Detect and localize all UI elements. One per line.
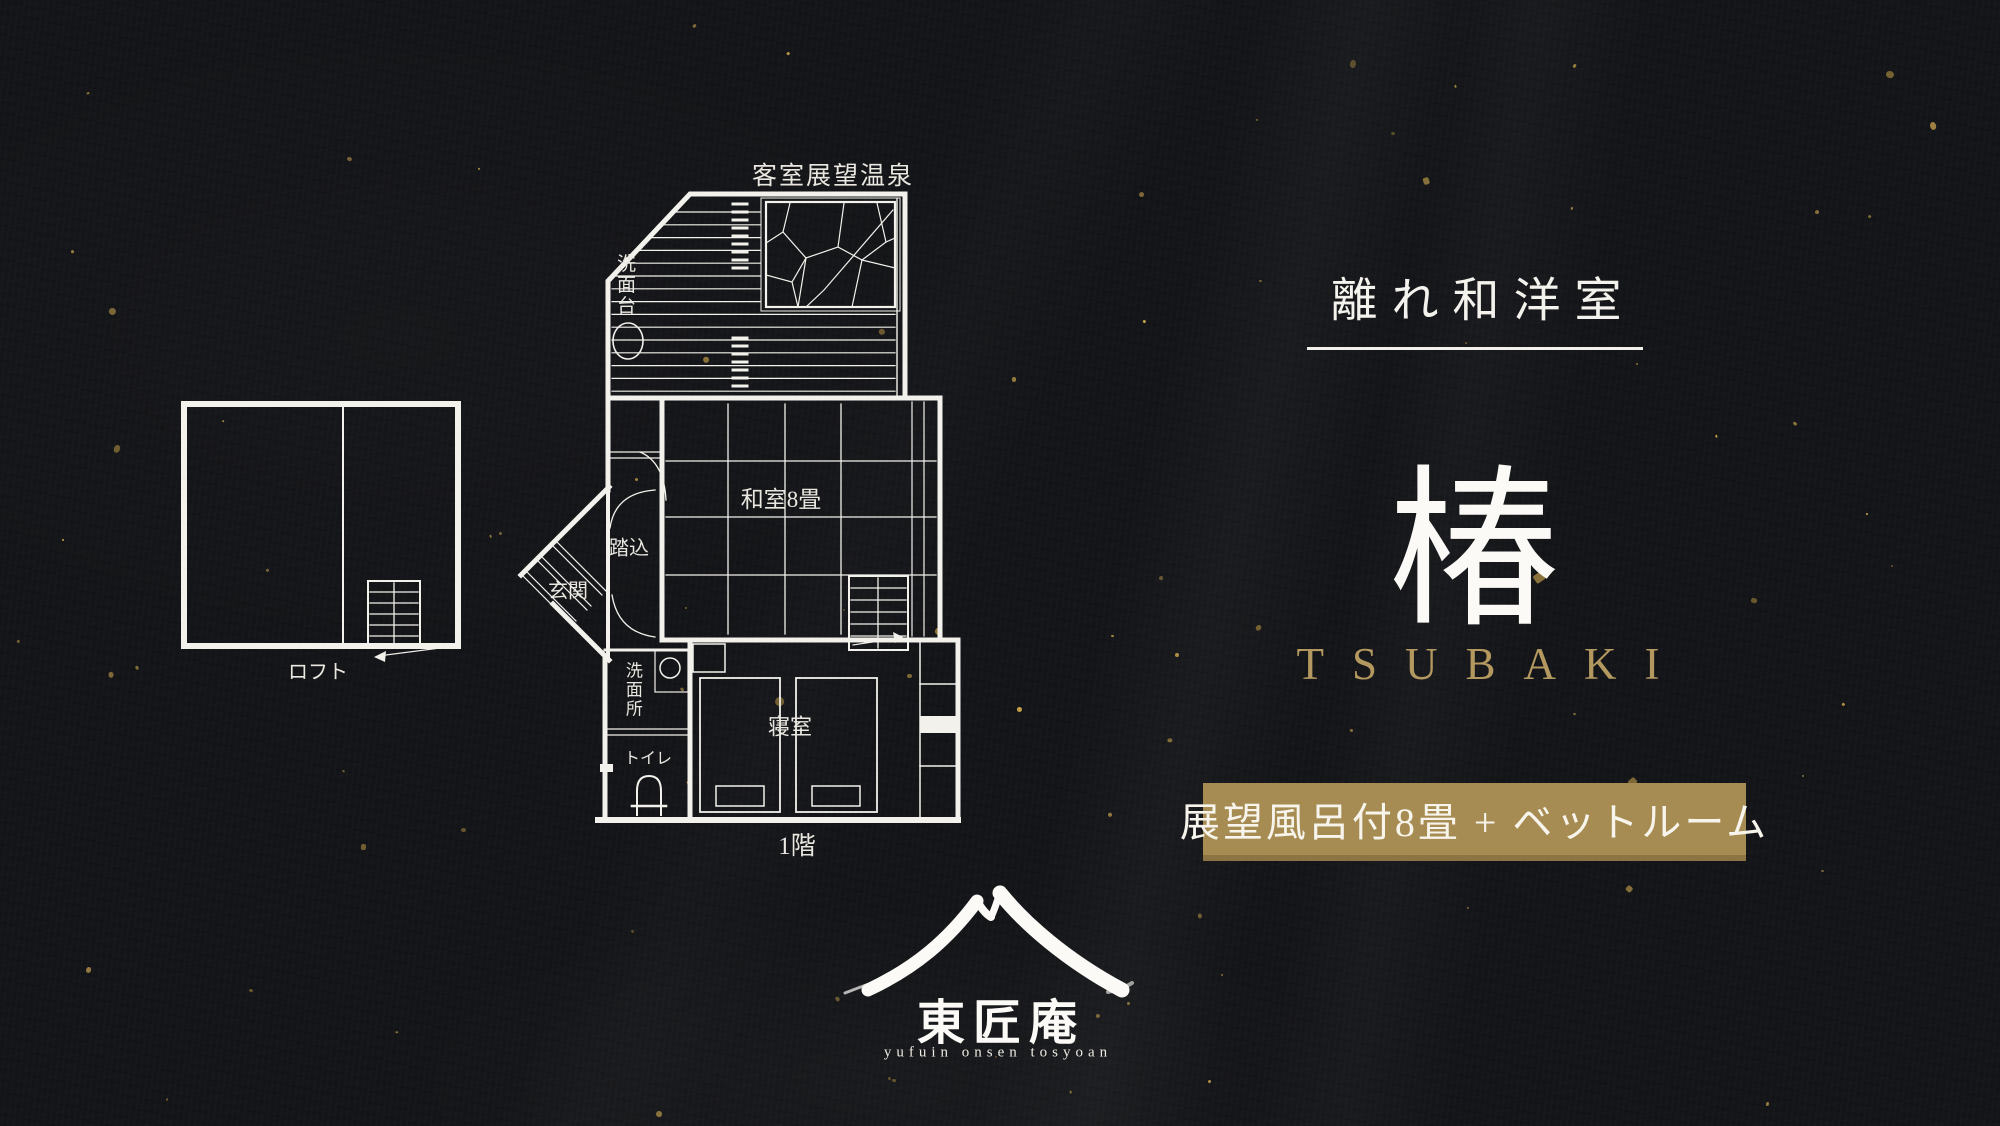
room-banner: 客室展望温泉 洗面台 和室8畳 踏込 玄関 洗面所 トイレ 寝室 1階 ロフト … [0,0,2000,1126]
logo-tagline: yufuin onsen tosyoan [884,1045,1112,1062]
mountain-logo-icon [0,0,2000,1126]
logo-calligraphy: 東匠庵 [909,983,1085,1053]
